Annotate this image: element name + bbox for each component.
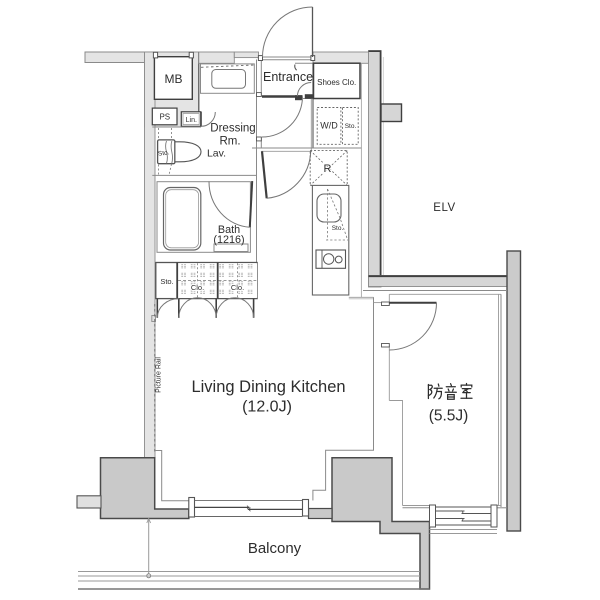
svg-text:Clo.: Clo. [191, 283, 204, 292]
svg-text:Sto.: Sto. [332, 225, 344, 232]
svg-text:Sto.: Sto. [160, 277, 173, 286]
svg-text:Shoes Clo.: Shoes Clo. [317, 78, 356, 87]
svg-text:(12.0J): (12.0J) [242, 399, 292, 416]
svg-text:Living Dining Kitchen: Living Dining Kitchen [191, 378, 345, 396]
svg-text:PS: PS [159, 113, 170, 122]
svg-text:MB: MB [165, 72, 183, 86]
svg-text:Rm.: Rm. [219, 136, 240, 148]
svg-text:Dressing: Dressing [210, 123, 255, 135]
svg-text:(1216): (1216) [213, 234, 244, 246]
svg-text:Balcony: Balcony [248, 540, 302, 557]
svg-text:Clo.: Clo. [231, 283, 244, 292]
svg-text:R: R [324, 163, 332, 175]
svg-text:Entrance: Entrance [263, 70, 313, 84]
svg-text:Lav.: Lav. [207, 148, 226, 160]
svg-text:Lin.: Lin. [186, 117, 197, 124]
svg-text:Picture Rail: Picture Rail [156, 357, 163, 393]
svg-text:W/D: W/D [320, 121, 338, 131]
svg-text:Sto.: Sto. [345, 123, 357, 130]
svg-text:(5.5J): (5.5J) [429, 408, 469, 425]
svg-text:ELV: ELV [433, 202, 455, 214]
